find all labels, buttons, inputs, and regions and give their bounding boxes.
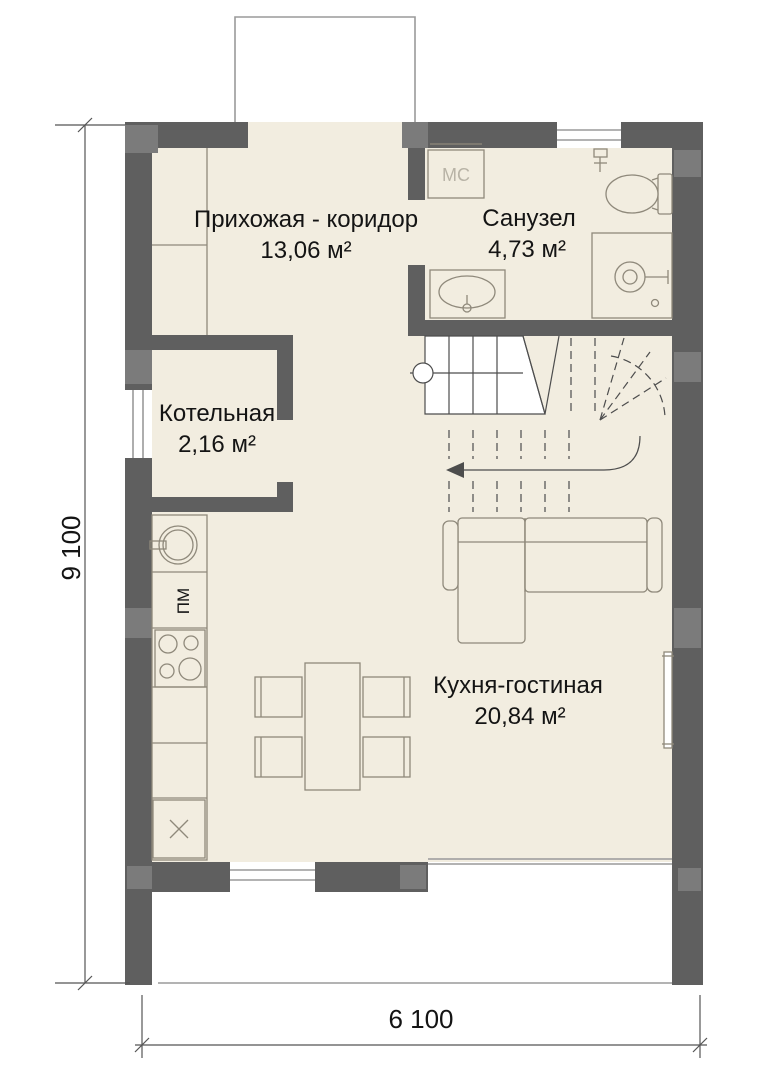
room-bathroom-area: 4,73 м² [488, 236, 566, 263]
chair [363, 677, 410, 717]
floor-plan-page: 9 100 6 100 Прихожая - коридор 13,06 м² … [0, 0, 764, 1080]
floor-plan-svg: 9 100 6 100 Прихожая - коридор 13,06 м² … [0, 0, 764, 1080]
dimension-height-label: 9 100 [56, 515, 86, 580]
toilet-fixture [606, 174, 672, 214]
window-top-bathroom [557, 130, 621, 140]
entrance-threshold [248, 122, 402, 148]
dimension-width-label: 6 100 [388, 1004, 453, 1034]
room-bathroom-name: Санузел [482, 205, 576, 232]
dishwasher-label: ПМ [174, 588, 193, 614]
radiator-symbol [662, 652, 674, 748]
wall-right [672, 122, 703, 985]
wall-boiler-right-upper [277, 335, 293, 420]
window-bottom-kitchen [230, 870, 315, 880]
room-kitchen-living-name: Кухня-гостиная [433, 672, 603, 699]
room-kitchen-living-area: 20,84 м² [474, 703, 565, 730]
wall-bathroom-left-upper [408, 148, 425, 200]
chair [255, 677, 302, 717]
room-hallway-area: 13,06 м² [260, 237, 351, 264]
wall-bathroom-bottom [408, 320, 703, 336]
room-hallway-name: Прихожая - коридор [194, 206, 418, 233]
chair [363, 737, 410, 777]
wall-left-lower [125, 458, 152, 985]
wall-boiler-bottom [125, 497, 293, 512]
room-boiler-area: 2,16 м² [178, 431, 256, 458]
wall-boiler-top [125, 335, 293, 350]
chair [255, 737, 302, 777]
window-left-boiler [133, 390, 143, 458]
dimension-height: 9 100 [55, 118, 130, 990]
dimension-width: 6 100 [135, 995, 707, 1058]
washing-machine-label: МС [442, 165, 470, 185]
room-boiler-name: Котельная [159, 400, 275, 427]
bathroom-sink-fixture [430, 270, 505, 318]
